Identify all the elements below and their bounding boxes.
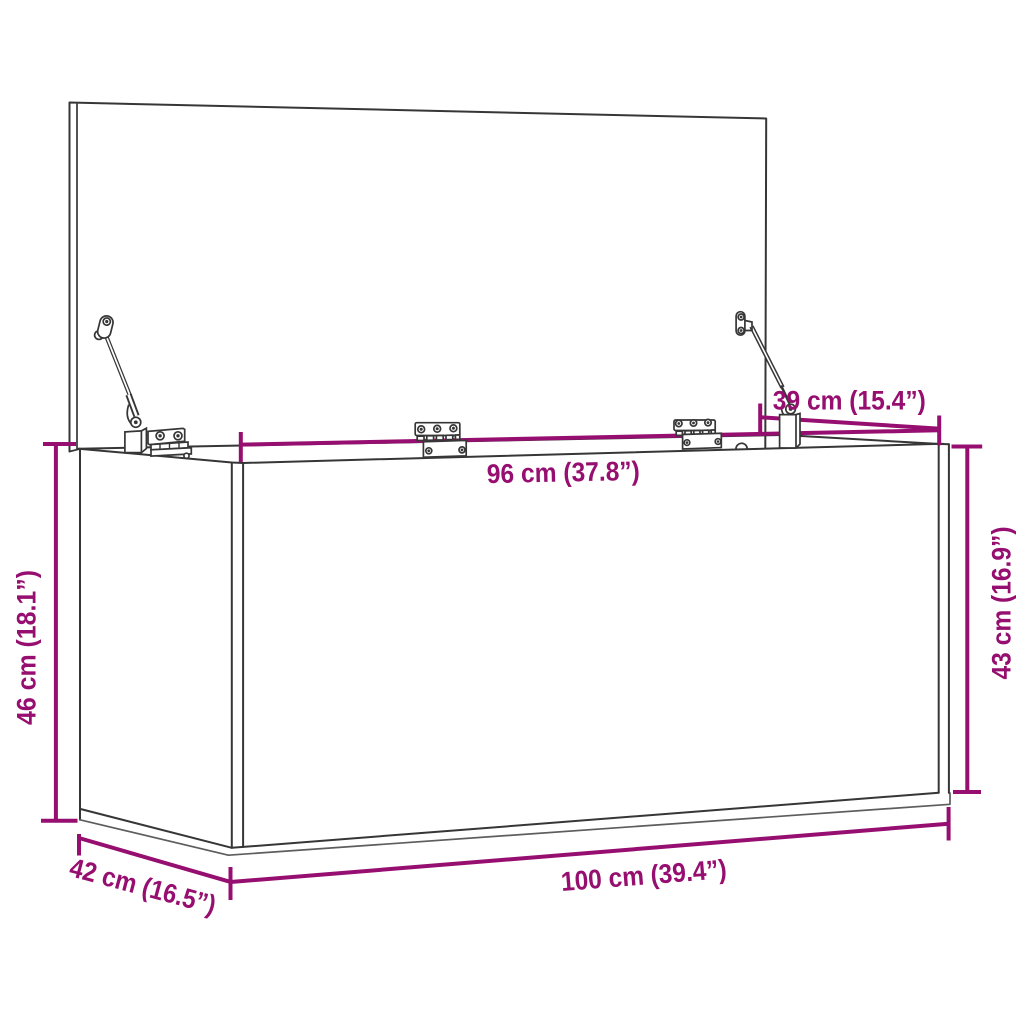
svg-text:39 cm (15.4”): 39 cm (15.4”) (773, 386, 926, 416)
svg-text:43 cm (16.9”): 43 cm (16.9”) (987, 527, 1017, 680)
svg-text:100 cm (39.4”): 100 cm (39.4”) (560, 854, 728, 897)
svg-text:42 cm (16.5”): 42 cm (16.5”) (67, 852, 220, 920)
svg-text:96 cm (37.8”): 96 cm (37.8”) (487, 456, 641, 489)
svg-text:46 cm (18.1”): 46 cm (18.1”) (12, 570, 42, 725)
